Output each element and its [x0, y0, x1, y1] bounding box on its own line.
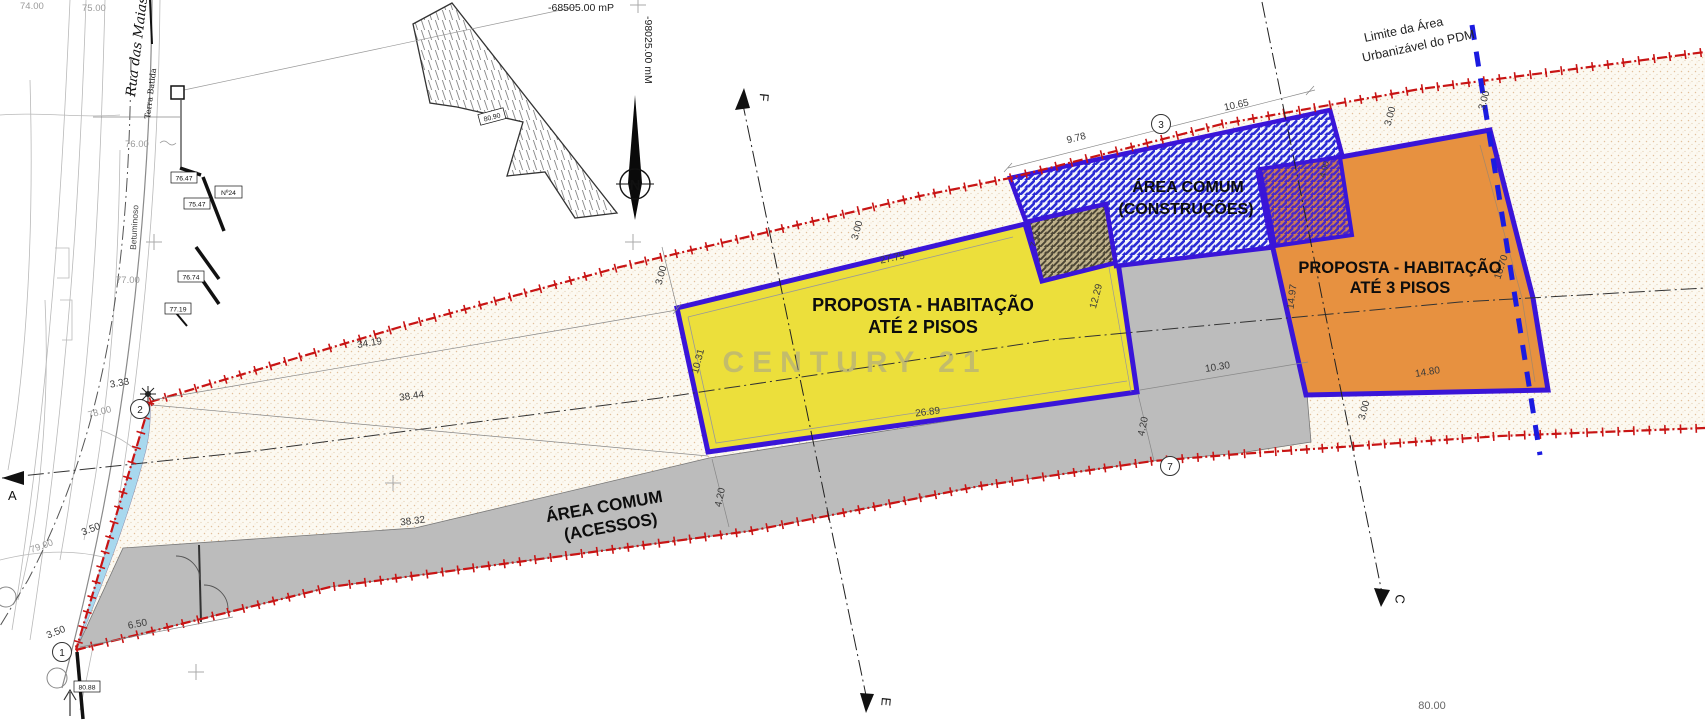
level-80-88: 80.88: [78, 685, 95, 692]
north-needle: [628, 95, 642, 220]
section-arrow-e: [860, 693, 874, 713]
section-label-e: E: [878, 697, 894, 707]
svg-text:3: 3: [1158, 120, 1164, 131]
coord-mm-label: -98025.00 mM: [642, 16, 654, 84]
coordinate-labels: -68505.00 mP -98025.00 mM: [548, 2, 654, 84]
flow-arrow: [64, 690, 76, 716]
tree-circle-2: [47, 668, 67, 688]
label-construcoes-line1: ÁREA COMUM: [1132, 177, 1243, 196]
site-plan-drawing: 80.90 F E C: [0, 0, 1705, 720]
terra-batida-label: Terra Batida: [143, 68, 158, 120]
coord-mp-label: -68505.00 mP: [548, 2, 614, 14]
level-76-74: 76.74: [182, 275, 199, 282]
century21-watermark: CENTURY 21: [722, 346, 987, 379]
pdm-limit-annotation: Limite da Área Urbanizável do PDM: [1357, 8, 1476, 65]
dim-3-50-a: 3.50: [80, 521, 103, 539]
dim-10-65: 10.65: [1223, 97, 1250, 113]
dim-3-50-b: 3.50: [45, 624, 68, 642]
contour-80-00: 80.00: [1418, 700, 1446, 712]
section-arrow-c: [1374, 588, 1390, 607]
contour-74: 74.00: [20, 1, 44, 12]
street-labels: Rua das Maias Terra Batida Betuminoso: [123, 0, 158, 250]
north-label: N: [630, 177, 641, 194]
contour-76: 76.00: [125, 139, 149, 150]
label-habitacao3-line2: ATÉ 3 PISOS: [1350, 278, 1451, 297]
point-marker-1: 1: [53, 643, 72, 662]
dim-3-33: 3.33: [109, 376, 131, 390]
level-77-19: 77.19: [169, 307, 186, 314]
hatched-overlap-purple: [1260, 157, 1352, 246]
section-label-c: C: [1392, 594, 1408, 605]
section-line-a-marker: A: [2, 471, 24, 503]
contour-75: 75.00: [82, 3, 106, 14]
level-75-47: 75.47: [188, 202, 205, 209]
tree-circle-1: [0, 587, 16, 607]
point-marker-2: 2: [131, 400, 150, 419]
label-habitacao2-line2: ATÉ 2 PISOS: [868, 316, 978, 337]
contour-77: 77.00: [116, 275, 140, 286]
dim-9-78: 9.78: [1066, 131, 1088, 146]
label-construcoes-line2: (CONSTRUÇÕES): [1118, 198, 1253, 218]
svg-text:1: 1: [59, 648, 65, 659]
north-arrow: N: [616, 95, 654, 220]
existing-building: 80.90: [184, 3, 617, 218]
point-marker-3: 3: [1152, 115, 1171, 134]
betuminoso-label: Betuminoso: [128, 204, 140, 250]
svg-text:7: 7: [1167, 462, 1173, 473]
tree-symbol: [140, 386, 156, 402]
contour-78: 78.00: [87, 404, 113, 421]
level-76-47: 76.47: [175, 176, 192, 183]
section-label-f: F: [756, 93, 772, 102]
svg-text:2: 2: [137, 405, 143, 416]
point-marker-7: 7: [1161, 457, 1180, 476]
section-label-a: A: [8, 488, 17, 503]
label-habitacao2-line1: PROPOSTA - HABITAÇÃO: [812, 294, 1034, 315]
section-arrow-f: [735, 88, 750, 110]
section-arrow-a: [2, 471, 24, 485]
label-habitacao3-line1: PROPOSTA - HABITAÇÃO: [1298, 257, 1501, 277]
label-n24: Nº24: [221, 190, 236, 197]
